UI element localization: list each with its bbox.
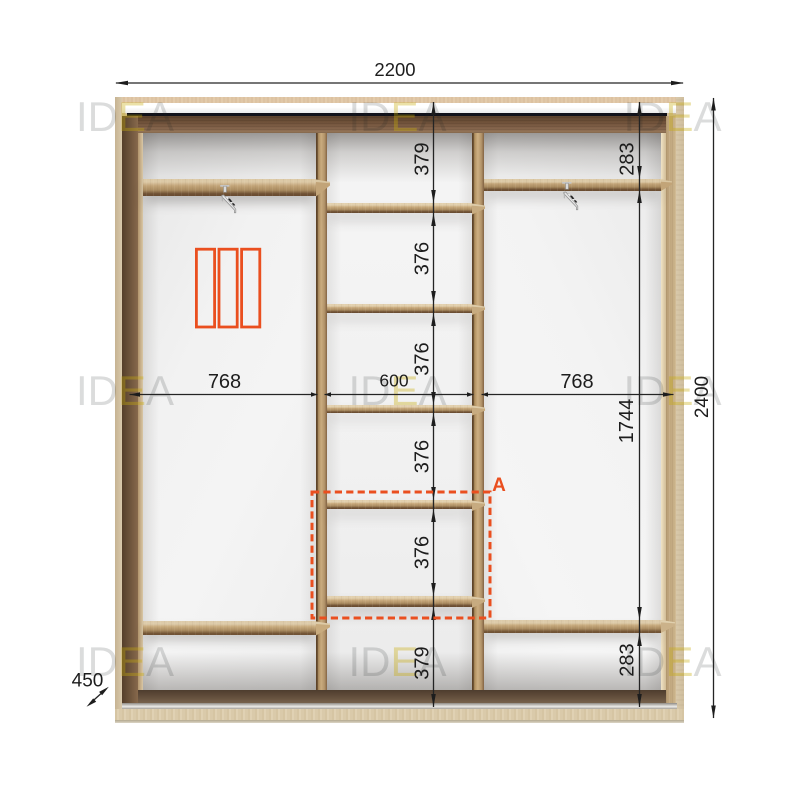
- svg-text:768: 768: [208, 371, 241, 393]
- svg-text:376: 376: [412, 536, 434, 569]
- svg-text:379: 379: [412, 646, 434, 679]
- svg-text:283: 283: [617, 142, 639, 175]
- svg-text:283: 283: [617, 643, 639, 676]
- svg-text:768: 768: [560, 371, 593, 393]
- svg-text:376: 376: [412, 242, 434, 275]
- svg-text:1744: 1744: [616, 399, 638, 444]
- svg-text:376: 376: [412, 342, 434, 375]
- svg-text:376: 376: [412, 440, 434, 473]
- svg-text:450: 450: [72, 671, 104, 692]
- svg-text:600: 600: [379, 371, 408, 391]
- svg-text:379: 379: [412, 142, 434, 175]
- svg-text:2400: 2400: [692, 376, 713, 418]
- svg-text:2200: 2200: [374, 59, 415, 80]
- svg-text:A: A: [492, 475, 506, 496]
